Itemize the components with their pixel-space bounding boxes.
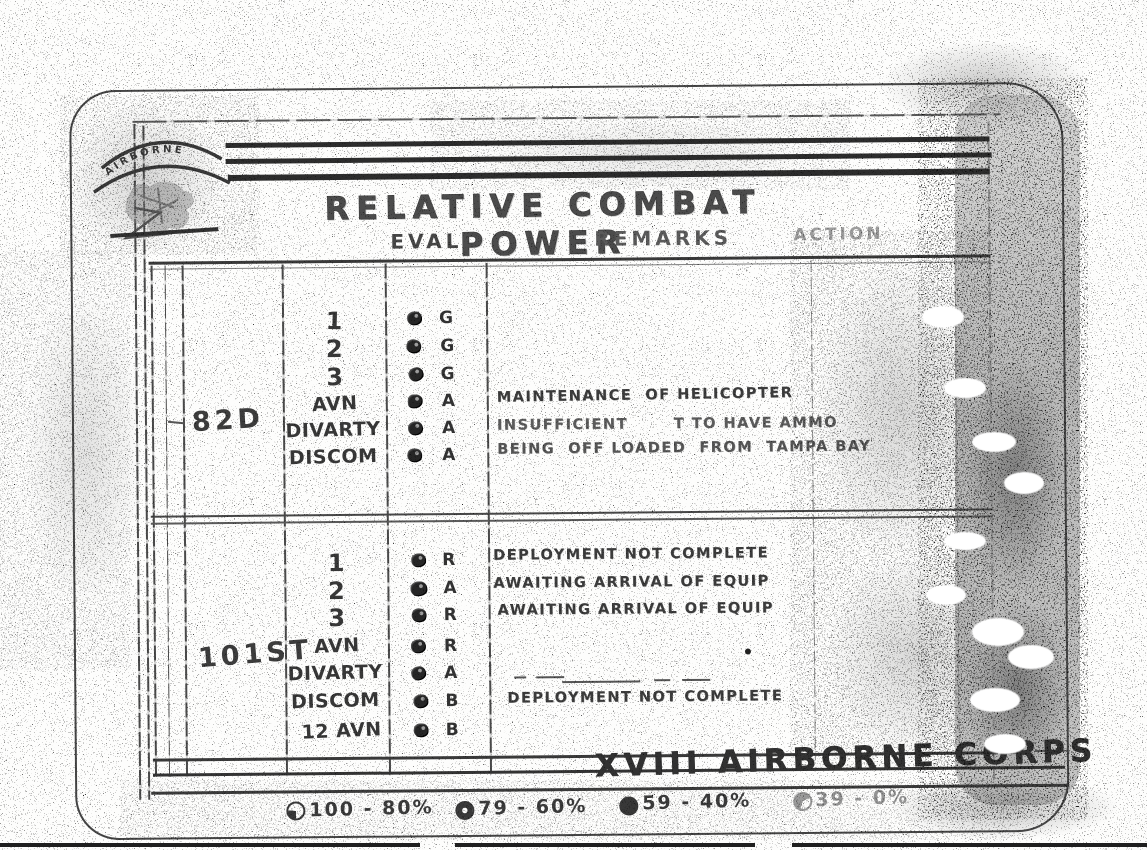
column-header-remarks: REMARKS <box>594 226 732 251</box>
eval-letter: A <box>442 391 455 411</box>
legend-symbol-3 <box>619 796 638 815</box>
eval-dot <box>407 311 422 325</box>
legend-item-1: 100 - 80% <box>309 796 434 821</box>
remark-text: DEPLOYMENT NOT COMPLETE <box>493 545 769 563</box>
airborne-patch-logo: AIRBORNE <box>87 115 240 244</box>
legend-symbol-2 <box>455 801 474 820</box>
eval-dot <box>413 694 428 708</box>
page-title: RELATIVE COMBAT POWER <box>308 183 779 266</box>
scanner-edge-line <box>0 843 1147 847</box>
pen-dash <box>682 679 710 681</box>
legend-item-2: 79 - 60% <box>478 795 588 820</box>
legend-symbol-1 <box>286 801 305 820</box>
patch-arc-label: AIRBORNE <box>103 144 186 178</box>
division-label-82d: 82D <box>191 403 265 438</box>
airborne-arc-text: AIRBORNE <box>103 144 186 178</box>
unit-label: DISCOM <box>281 445 386 470</box>
unit-label: 2 <box>282 335 386 364</box>
eval-letter: A <box>443 578 456 598</box>
eval-letter: R <box>444 605 457 625</box>
pen-dash <box>514 676 526 678</box>
pen-dash <box>536 676 564 678</box>
eval-letter: R <box>442 550 455 570</box>
unit-label: AVN <box>282 391 387 418</box>
eval-letter: G <box>440 364 454 384</box>
legend-symbol-4 <box>793 792 812 811</box>
chart-scan: AIRBORNE RELATIVE COMBAT POWER EVAL REMA… <box>0 0 1147 850</box>
remark-text: DEPLOYMENT NOT COMPLETE <box>507 688 783 706</box>
remark-text: INSUFFICIENT T TO HAVE AMMO <box>497 415 838 434</box>
remark-text: AWAITING ARRIVAL OF EQUIP <box>498 600 775 618</box>
eval-dot <box>410 581 427 596</box>
unit-label: AVN <box>284 633 389 660</box>
unit-label: 12 AVN <box>289 718 394 745</box>
eval-letter: A <box>442 418 455 438</box>
eval-letter: B <box>445 691 458 711</box>
remark-text: BEING OFF LOADED FROM TAMPA BAY <box>497 438 871 457</box>
unit-label: 3 <box>282 361 387 394</box>
unit-label: DIVARTY <box>281 418 386 443</box>
eval-letter: A <box>444 663 457 683</box>
unit-label: DIVARTY <box>283 661 388 686</box>
unit-label: 2 <box>284 577 388 606</box>
pen-dot <box>745 648 751 654</box>
scanned-chart-page: AIRBORNE RELATIVE COMBAT POWER EVAL REMA… <box>0 0 1147 850</box>
unit-label: 1 <box>282 306 387 337</box>
eval-dot <box>411 553 426 567</box>
unit-label: 1 <box>284 549 388 578</box>
unit-label: 3 <box>285 604 389 633</box>
eval-letter: G <box>439 308 453 328</box>
pen-dash <box>654 679 670 681</box>
eval-dot <box>411 639 426 653</box>
legend-item-3: 59 - 40% <box>642 790 752 815</box>
eval-letter: R <box>444 636 457 656</box>
column-header-eval: EVAL <box>390 229 462 254</box>
legend-item-4: 39 - 0% <box>815 786 910 811</box>
remark-text: AWAITING ARRIVAL OF EQUIP <box>493 573 770 591</box>
eval-letter: B <box>446 720 459 740</box>
eval-dot <box>408 421 423 435</box>
eval-letter: A <box>442 445 455 465</box>
column-header-action: ACTION <box>793 224 884 246</box>
unit-label: DISCOM <box>283 689 388 714</box>
eval-letter: G <box>440 336 454 356</box>
